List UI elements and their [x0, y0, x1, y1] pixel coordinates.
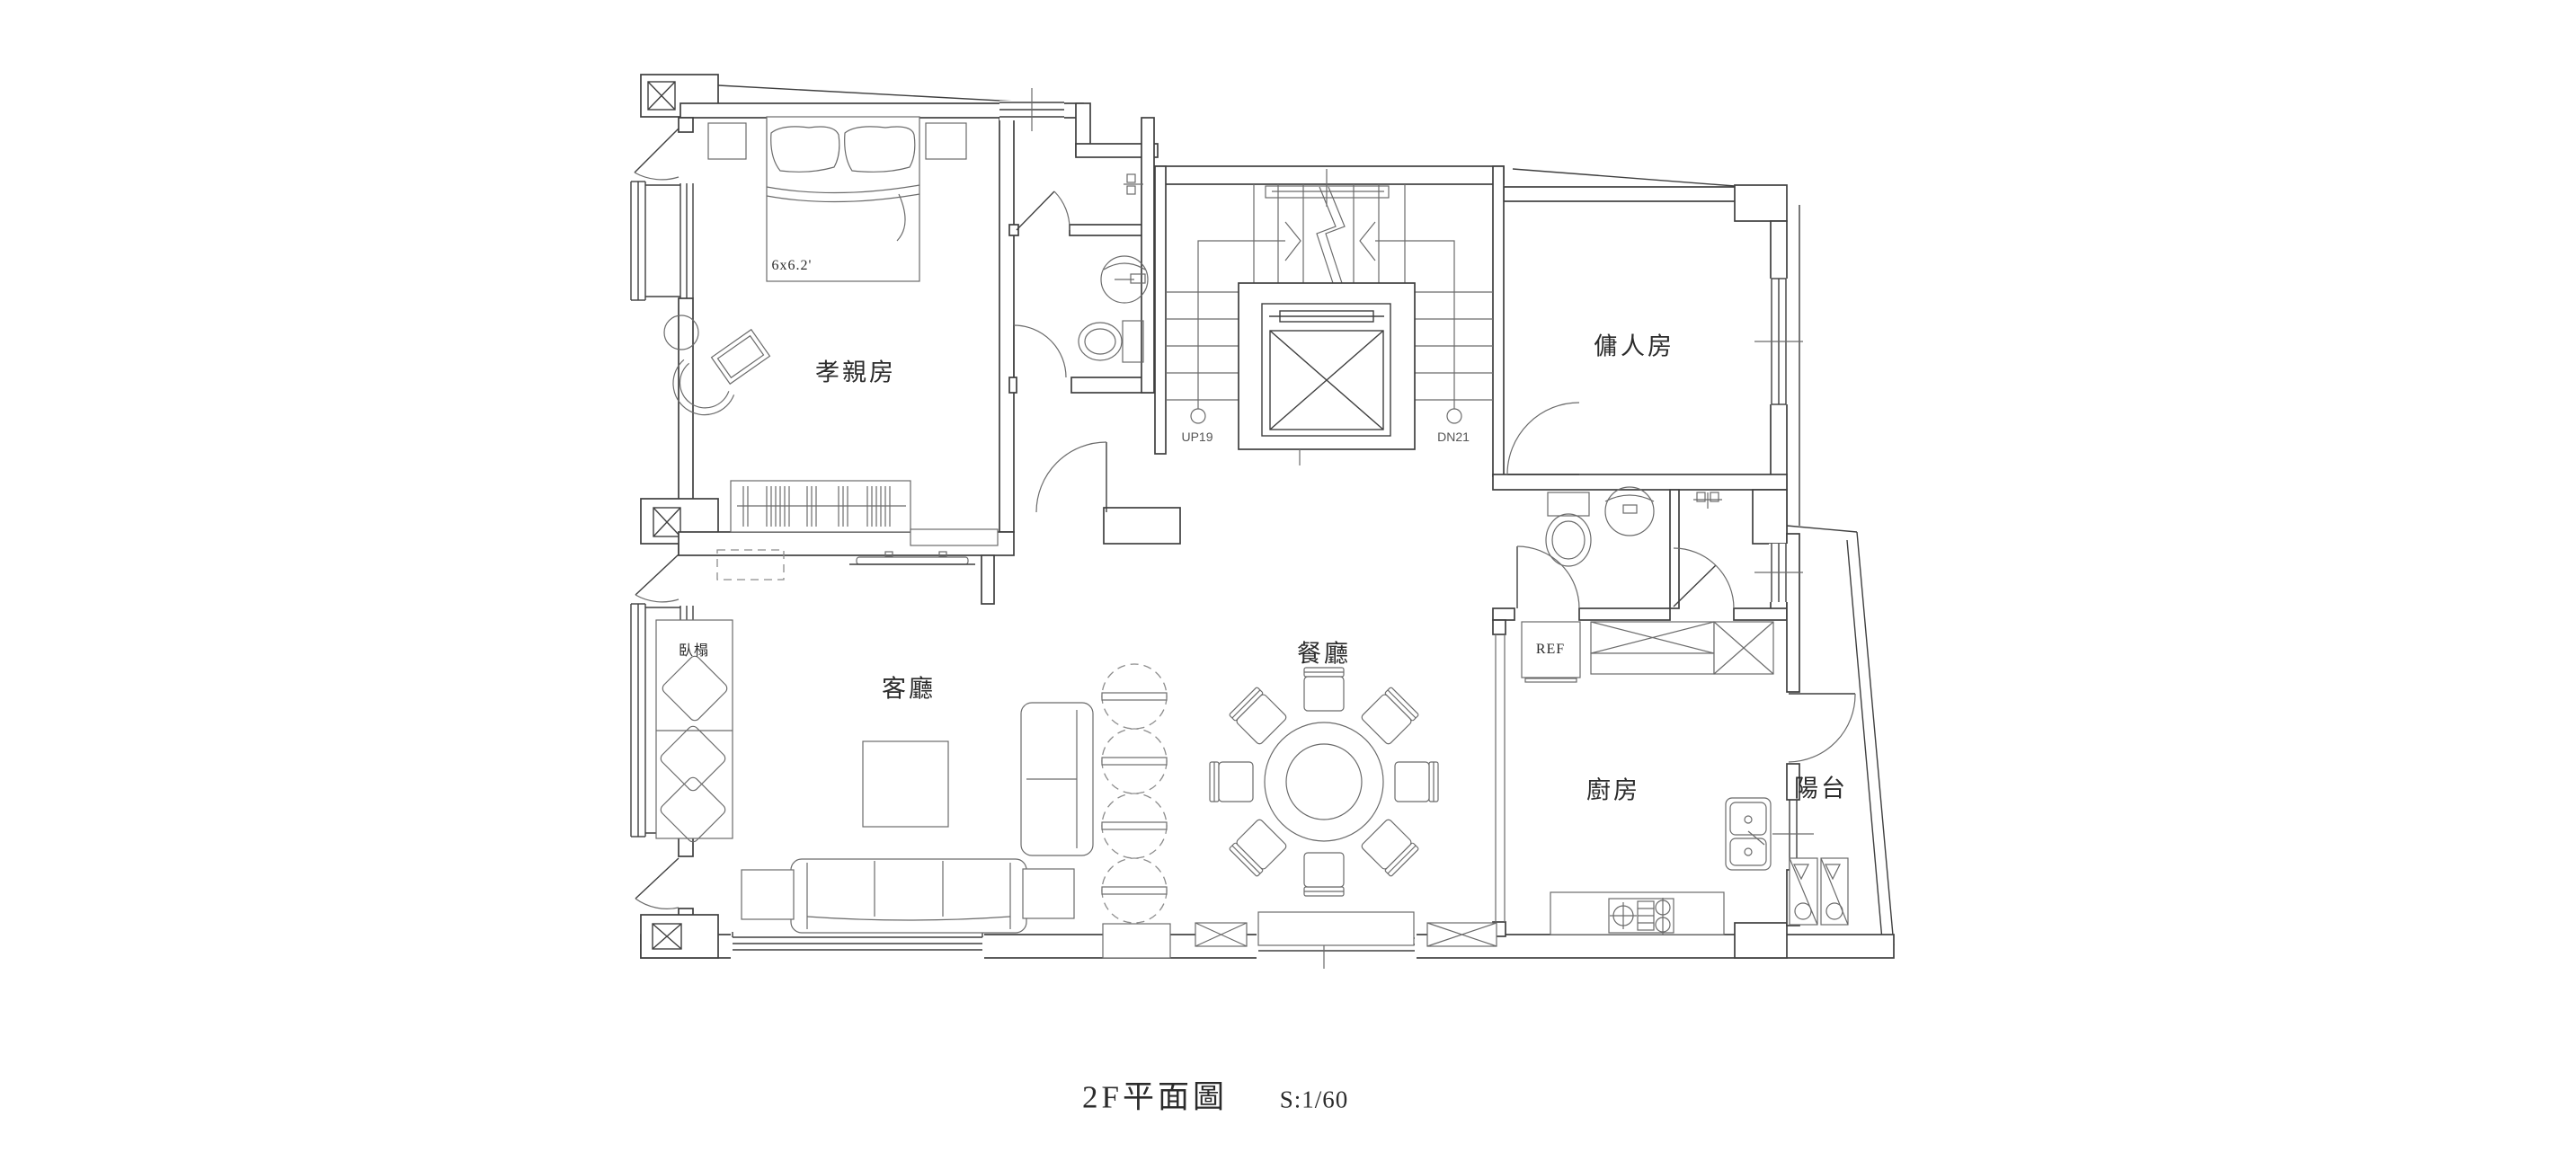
round-display-shelf: [1102, 664, 1170, 958]
elevator: [1239, 283, 1415, 465]
room-label-parents-room: 孝親房: [815, 353, 896, 388]
coffee-table: [863, 741, 948, 827]
room-label-kitchen: 廚房: [1586, 771, 1640, 806]
room-label-servant-room: 傭人房: [1594, 327, 1674, 362]
floor-plan-drawing: [0, 0, 2576, 1170]
annotation-refrigerator: REF: [1536, 642, 1565, 658]
room-label-balcony: 陽台: [1794, 769, 1848, 804]
drawing-scale: S:1/60: [1280, 1086, 1349, 1114]
upper-bathroom-fixtures: [1079, 174, 1148, 362]
side-table-left: [742, 870, 794, 919]
dining-table: [1265, 722, 1383, 841]
loveseat: [1021, 703, 1093, 855]
sofa: [791, 859, 1026, 933]
side-table-right: [1023, 869, 1074, 918]
dining-chairs: [1210, 668, 1438, 896]
kitchen-fixtures: [1522, 622, 1773, 935]
floor-plan-canvas: 孝親房 傭人房 客廳 餐廳 廚房 陽台 臥榻 6x6.2' UP19 DN21 …: [0, 0, 2576, 1170]
annotation-stairs-down: DN21: [1437, 430, 1470, 444]
drawing-title: 2F平面圖: [1082, 1072, 1228, 1118]
annotation-stairs-up: UP19: [1181, 430, 1212, 444]
right-bathroom-fixtures: [1546, 487, 1722, 566]
balcony-appliances: [1790, 858, 1848, 925]
bedroom-chair-set: [661, 315, 769, 427]
room-label-dining-room: 餐廳: [1297, 634, 1351, 669]
bed: [767, 117, 919, 281]
annotation-bed-size: 6x6.2': [772, 258, 813, 274]
sideboard: [1195, 912, 1497, 946]
room-label-living-room: 客廳: [882, 669, 936, 705]
annotation-daybed: 臥榻: [679, 638, 709, 660]
